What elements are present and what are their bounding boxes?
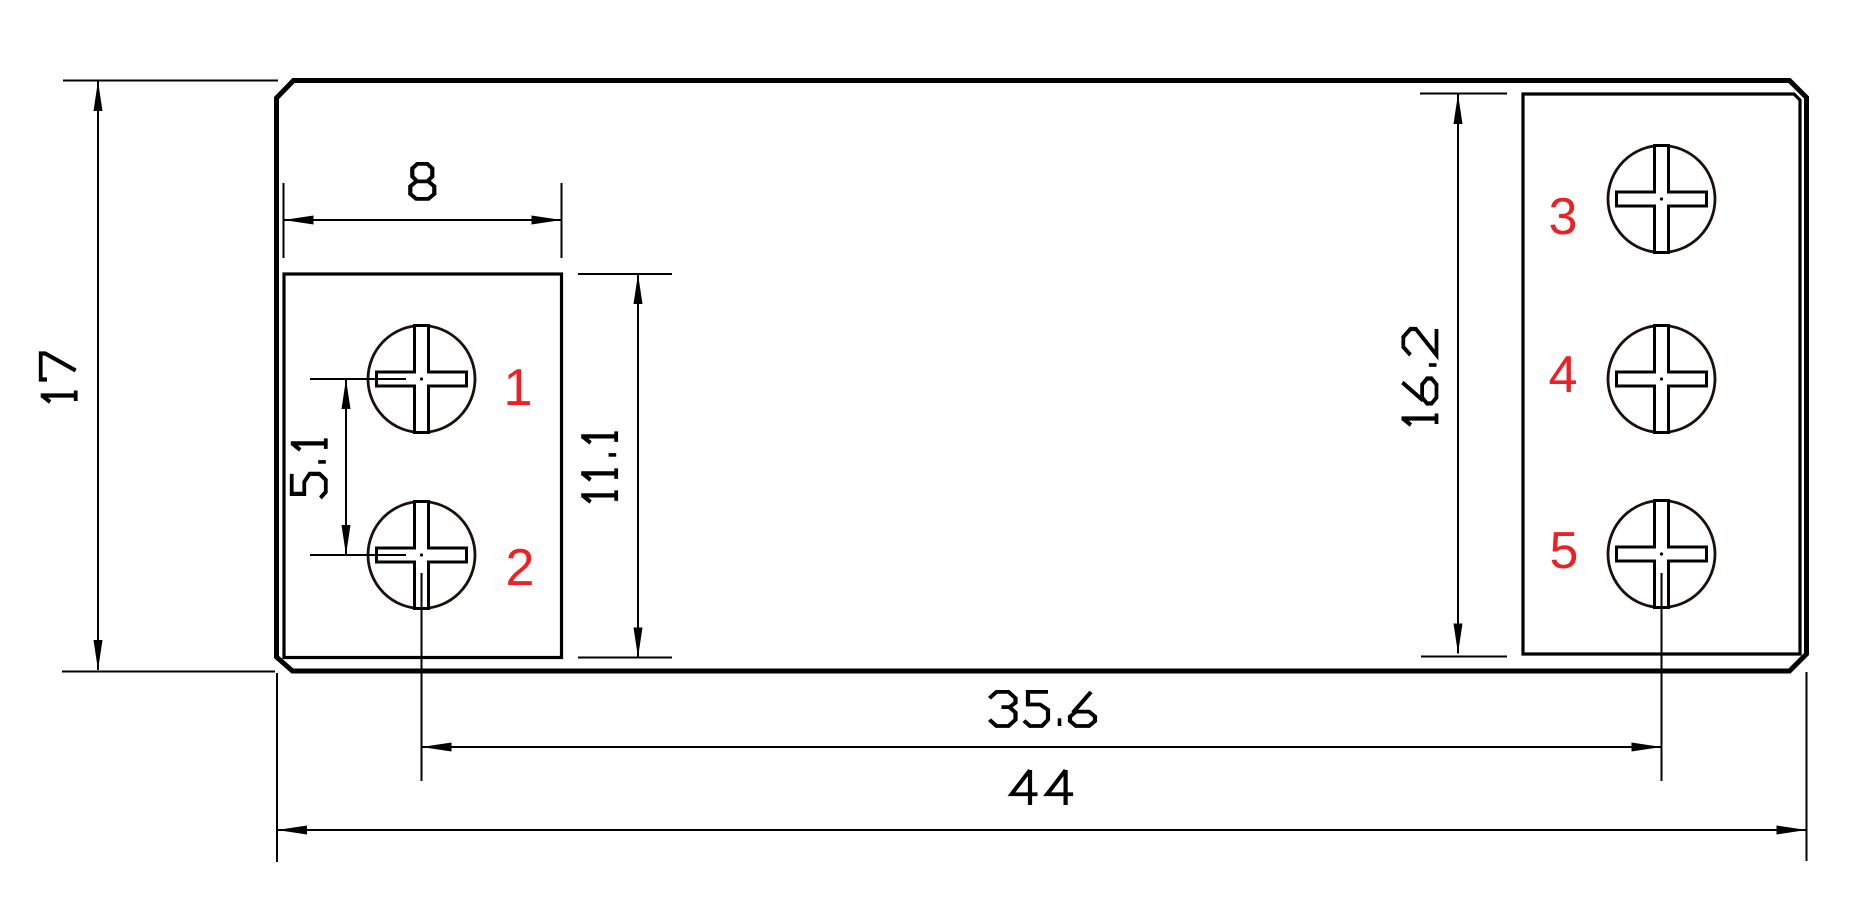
svg-text:3: 3 bbox=[1549, 188, 1578, 246]
svg-text:4: 4 bbox=[1549, 346, 1578, 404]
svg-text:1: 1 bbox=[504, 359, 533, 417]
svg-text:2: 2 bbox=[506, 539, 535, 597]
svg-text:5: 5 bbox=[1550, 522, 1579, 580]
